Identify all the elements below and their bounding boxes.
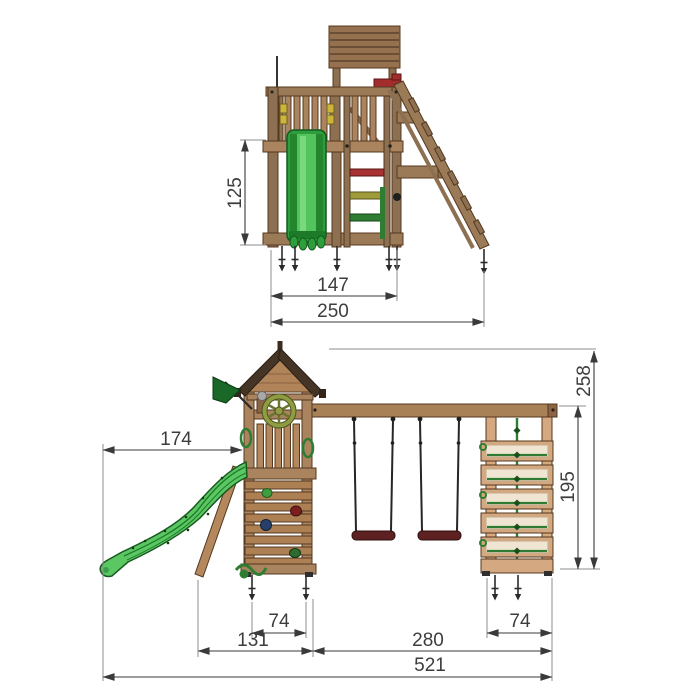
ground-anchor [481,249,488,275]
dim-frame-base-width: 74 [487,578,552,681]
bottom-plank [481,559,553,573]
slide-foot [299,238,307,250]
dim-platform-height: 125 [225,140,266,245]
slat [293,424,300,469]
dim-total-depth: 250 [271,271,484,327]
swing-rope [354,420,356,531]
dim-label-74-left: 74 [268,611,290,632]
dim-label-258: 258 [574,365,595,397]
railing-slat [370,96,376,141]
dim-label-174: 174 [160,429,192,450]
slide-front-view [100,462,247,577]
dim-total-width: 521 [103,655,552,677]
rope-knot [419,441,423,445]
red-bracket-top [392,74,401,80]
eave-cap [319,389,326,398]
ground-anchors-side-view [279,246,488,275]
beam [312,404,557,417]
left-post [268,87,278,247]
rope-knot [391,441,395,445]
green-pole [380,187,385,239]
mid-plank [263,141,403,152]
foot-bracket [544,571,552,576]
swing-rope [420,420,422,531]
dim-label-131: 131 [237,630,269,651]
tower-roof [234,341,326,400]
slat [266,424,273,469]
dim-label-250: 250 [317,301,349,322]
ground-anchor [303,575,310,601]
wall-plank [245,492,312,500]
slide-foot [308,238,316,250]
swing-rope [391,420,393,531]
ladder-rail [344,96,350,247]
slide-rail [290,134,297,236]
swing-beam [312,404,557,417]
climb-hold-blue [261,520,272,531]
ground-anchor [515,575,522,601]
tower-railing-slats [257,424,300,469]
access-stairs [389,81,489,249]
foot-bracket [482,571,490,576]
dim-label-147: 147 [317,275,349,296]
dim-label-280: 280 [412,630,444,651]
swing-seat [418,531,461,540]
mid-post [332,152,341,247]
swing-rope [457,420,459,531]
slide-bed [297,134,316,236]
rung-olive [350,192,384,199]
climb-hold-green [262,489,272,498]
ground-anchor [386,246,393,272]
ground-anchor [492,575,499,601]
dim-label-521: 521 [414,655,446,676]
dim-slide-section: 131 [198,580,313,657]
ground-anchor [292,246,299,272]
slide-foot [317,236,325,248]
side-view: 125 147 250 [225,26,489,327]
climbing-frame [480,417,553,576]
railing-slat [352,96,358,141]
slat [257,424,264,469]
flag-banner [213,377,240,403]
playground-dimension-drawing: 125 147 250 [0,0,700,700]
swing-seat [352,531,395,540]
wall-plank [245,514,312,522]
wall-plank [245,503,312,511]
ground-anchors-front-view [249,575,522,601]
dim-frame-height: 195 [558,406,586,569]
periscope-head [258,392,267,401]
ground-anchor [334,246,341,272]
bolt [551,408,554,411]
wall-plank [245,536,312,544]
climb-hold-red [291,506,302,516]
platform-band [241,468,316,479]
top-rail [266,87,400,96]
railing-right [350,96,382,148]
slide-top-view [287,130,326,250]
railing-slat [361,96,367,141]
dim-label-74-right: 74 [509,611,531,632]
front-view: 174 258 195 74 131 280 [100,341,600,681]
bolt [313,408,316,411]
swing-left [352,417,396,540]
slat [284,424,291,469]
slat [275,424,282,469]
dim-label-125: 125 [225,177,246,209]
rope-knot [353,441,357,445]
wall-plank [245,547,312,555]
wall-plank [245,481,312,489]
rung-red [350,169,384,176]
swing-right [418,417,462,540]
wheel-hub [275,407,283,415]
rope-knot-blob [240,570,249,579]
climb-hold-darkgreen [290,549,301,558]
ground-anchor [279,246,286,272]
slide-tip [103,567,109,573]
dim-label-195: 195 [558,471,579,503]
knob [393,193,401,201]
wall-plank [245,525,312,533]
slide-chute [100,462,247,577]
rope-knot [457,441,461,445]
roof-finial [278,341,283,350]
slide-foot [290,236,298,248]
slide-rail [316,134,323,236]
ground-anchor [249,575,256,601]
rung-green [350,214,384,221]
slide-highlight [300,136,306,234]
